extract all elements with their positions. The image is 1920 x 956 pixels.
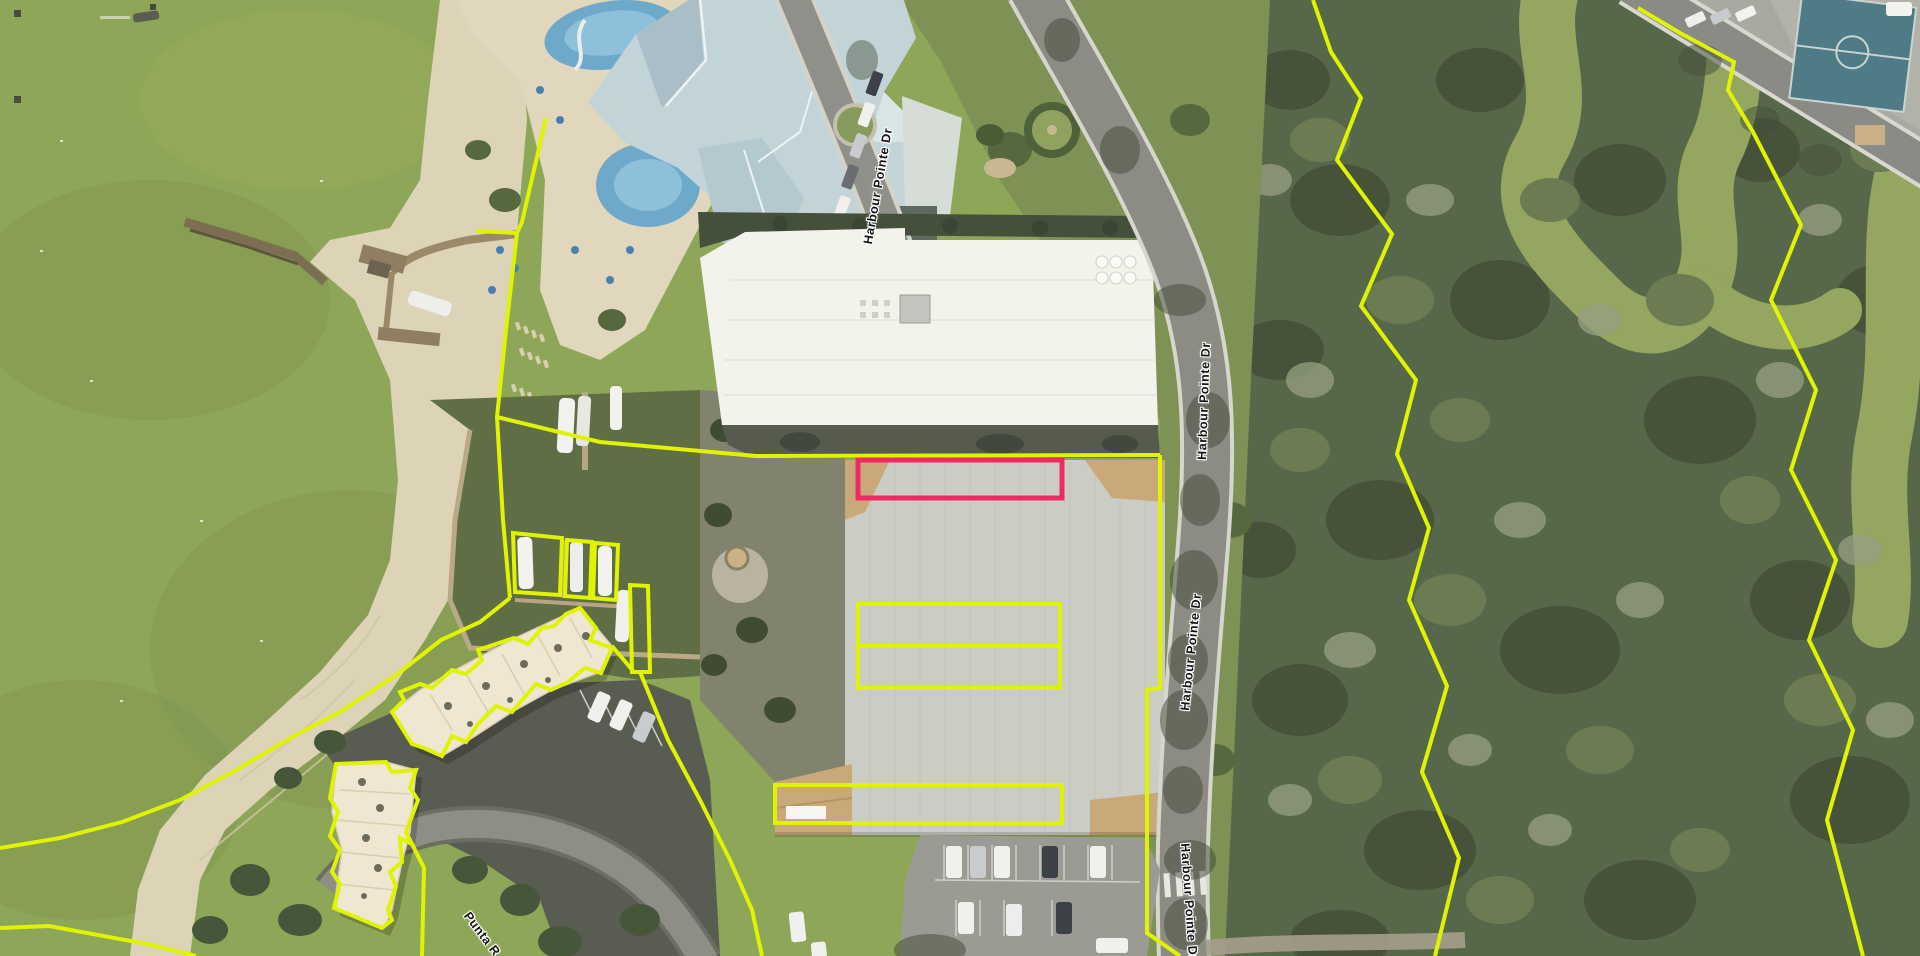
boat-slip-2[interactable] [565, 540, 592, 598]
parcel-overlay [0, 0, 1920, 956]
pier-tick [476, 231, 517, 233]
bottom-left-boundary [0, 926, 196, 956]
dock-parcel[interactable] [630, 585, 650, 672]
map-viewport[interactable]: Harbour Pointe DrHarbour Pointe DrHarbou… [0, 0, 1920, 956]
marina-north-boundary [497, 417, 1160, 456]
parcel-rect-mid-2[interactable] [858, 646, 1060, 688]
forest-boundary-east [1638, 8, 1863, 956]
warehouse-east-boundary [1147, 455, 1180, 956]
condo-south-boundary [412, 844, 424, 956]
shore-boundary [497, 118, 546, 598]
forest-boundary-west [1313, 0, 1459, 956]
selected-parcel-highlight[interactable] [858, 460, 1062, 498]
boat-slip-1[interactable] [513, 533, 562, 595]
condo-west-outline[interactable] [330, 762, 418, 928]
parcel-south-boundary [640, 672, 762, 956]
condo-north-outline[interactable] [392, 608, 612, 756]
parcel-rect-mid-1[interactable] [858, 604, 1060, 646]
boat-slip-3[interactable] [593, 543, 618, 600]
beach-boundary [0, 598, 510, 848]
parcel-rect-south[interactable] [775, 785, 1062, 823]
